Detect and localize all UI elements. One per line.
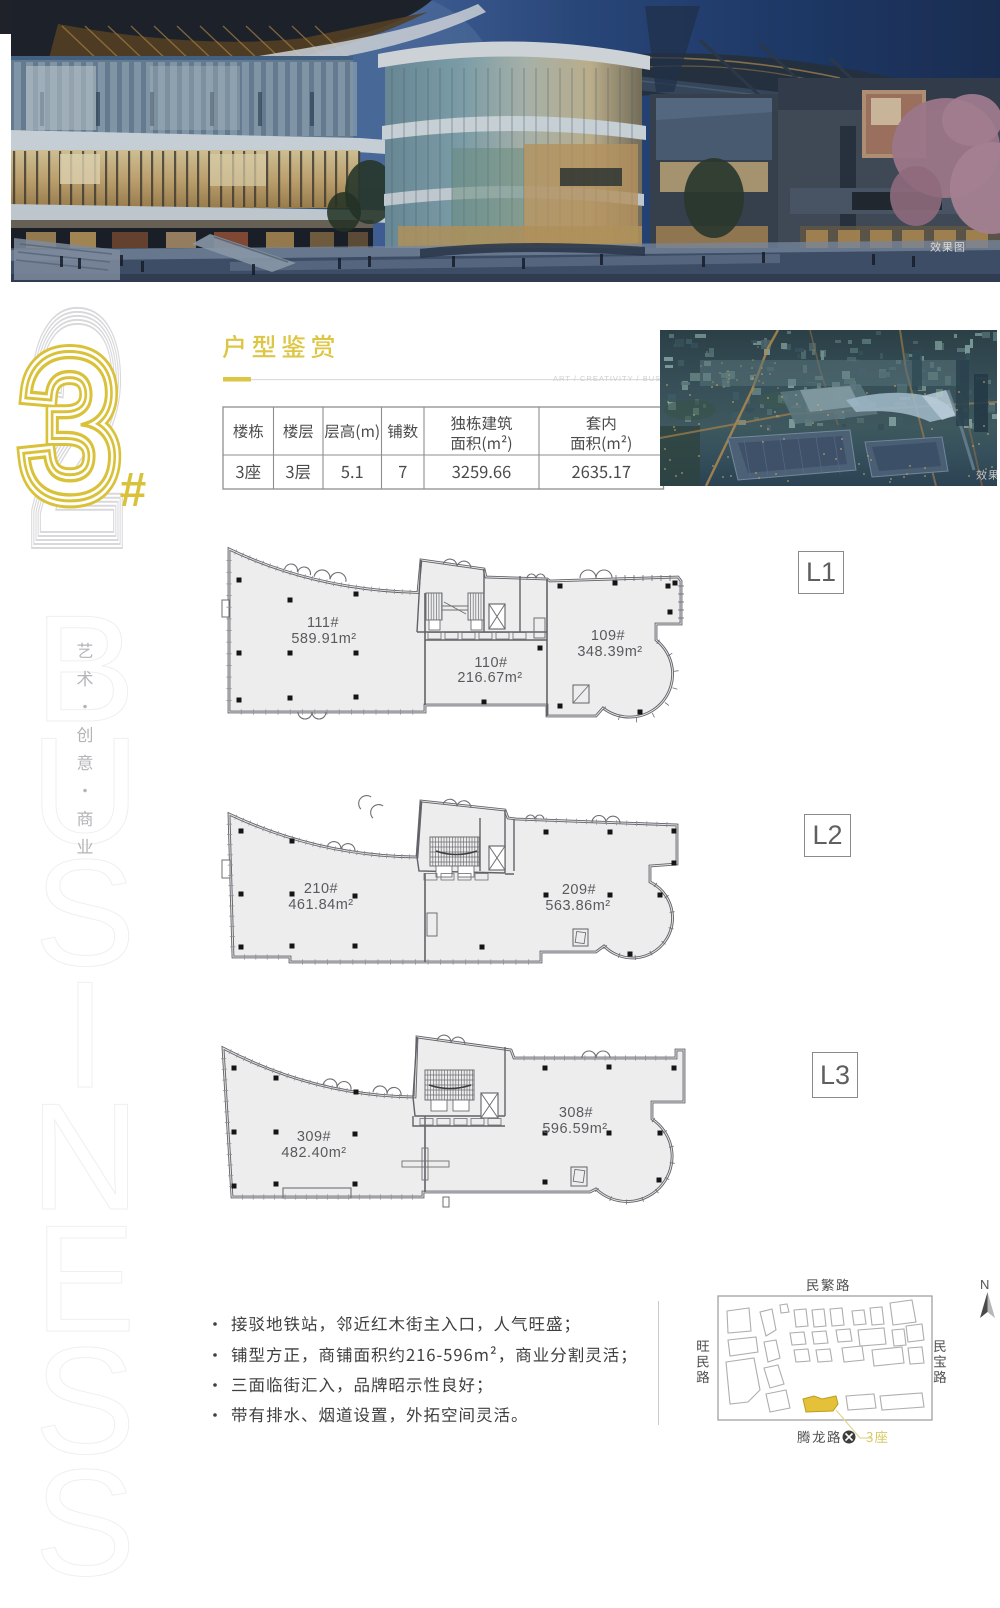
svg-text:589.91m²: 589.91m² [291, 631, 356, 647]
svg-text:461.84m²: 461.84m² [288, 897, 353, 913]
svg-text:#: # [120, 464, 147, 517]
svg-text:109#: 109# [591, 628, 625, 644]
svg-text:563.86m²: 563.86m² [545, 898, 610, 914]
svg-text:348.39m²: 348.39m² [577, 644, 642, 660]
svg-text:596.59m²: 596.59m² [542, 1121, 607, 1137]
svg-text:110#: 110# [474, 655, 507, 671]
svg-text:N: N [980, 1277, 989, 1292]
svg-text:209#: 209# [562, 882, 596, 898]
svg-text:309#: 309# [297, 1129, 331, 1145]
svg-text:111#: 111# [307, 615, 339, 631]
svg-text:210#: 210# [304, 881, 338, 897]
svg-text:482.40m²: 482.40m² [281, 1145, 346, 1161]
svg-text:308#: 308# [559, 1105, 593, 1121]
svg-text:216.67m²: 216.67m² [457, 670, 522, 686]
svg-text:3: 3 [23, 317, 117, 535]
